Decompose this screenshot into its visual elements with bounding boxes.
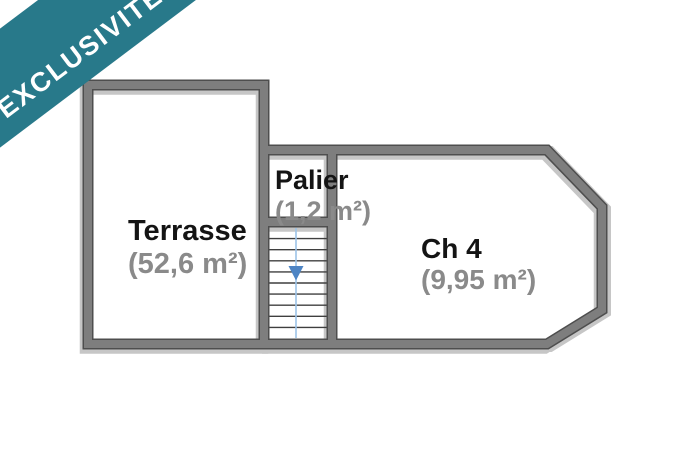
floorplan-canvas: Terrasse (52,6 m²) Palier (1,2 m²) Ch 4 … — [0, 0, 700, 470]
staircase — [270, 228, 327, 338]
stair-down-arrow-icon — [289, 266, 304, 281]
floorplan-walls — [0, 0, 700, 470]
